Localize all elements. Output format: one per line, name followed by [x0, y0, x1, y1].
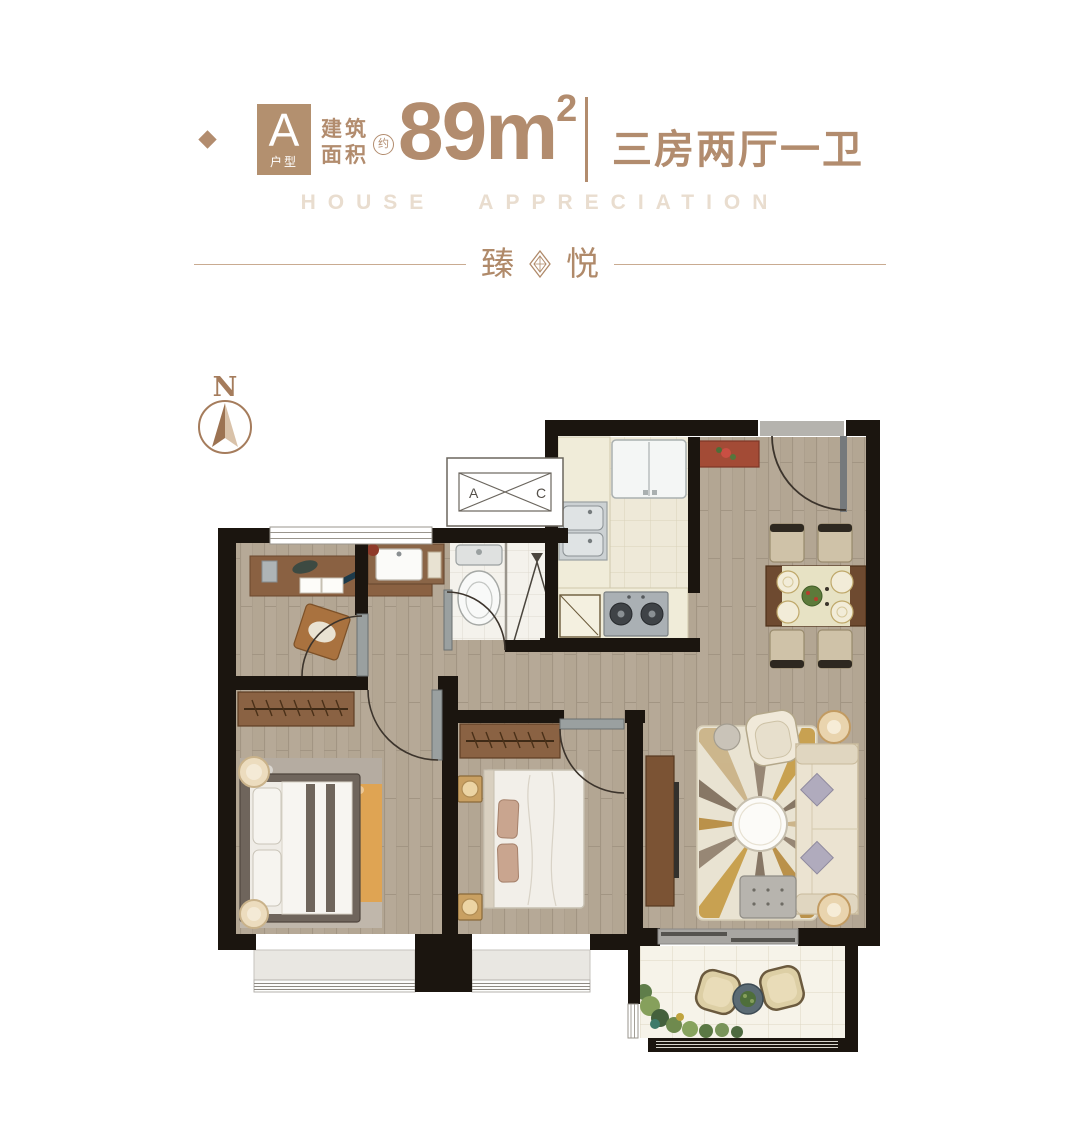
- bathroom-door-leaf: [444, 590, 452, 650]
- duvet: [282, 782, 352, 914]
- toilet-bowl: [458, 571, 500, 625]
- tv-cabinet: [646, 756, 674, 906]
- pillow: [253, 788, 281, 844]
- balcony-side-window: [628, 1004, 638, 1038]
- north-compass: N: [199, 372, 251, 453]
- side-stool: [714, 724, 740, 750]
- ac-label-a: A: [469, 485, 479, 501]
- entry-threshold: [760, 421, 844, 436]
- tv: [674, 782, 679, 878]
- bay-window-master: [254, 950, 415, 992]
- study-window: [270, 527, 432, 544]
- vase: [367, 544, 379, 556]
- compass-needle-light: [225, 403, 238, 447]
- pillow: [253, 850, 281, 906]
- coffee-table: [733, 797, 787, 851]
- floor-plan-page: A 户型 建筑 面积 约 89m2 三房两厅一卫 HOUSE APPRECIAT…: [0, 0, 1080, 1122]
- table-centerpiece: [802, 586, 822, 606]
- compass-n-label: N: [213, 372, 238, 403]
- entry-door-leaf: [840, 436, 847, 512]
- second-bed: [484, 770, 584, 908]
- floor-plan-drawing: A C N: [0, 0, 1080, 1122]
- compass-needle-dark: [212, 403, 225, 447]
- ac-label-c: C: [536, 485, 546, 501]
- pillow: [497, 800, 519, 839]
- armchair: [744, 708, 802, 768]
- study-door-leaf: [357, 614, 368, 676]
- second-bedroom-door-leaf: [560, 719, 624, 729]
- ottoman: [740, 876, 796, 918]
- ac-platform: A C: [447, 458, 563, 526]
- vanity-counter: [367, 544, 444, 584]
- master-door-leaf: [432, 690, 442, 760]
- bay-window-second: [472, 950, 590, 992]
- pillow: [497, 844, 518, 883]
